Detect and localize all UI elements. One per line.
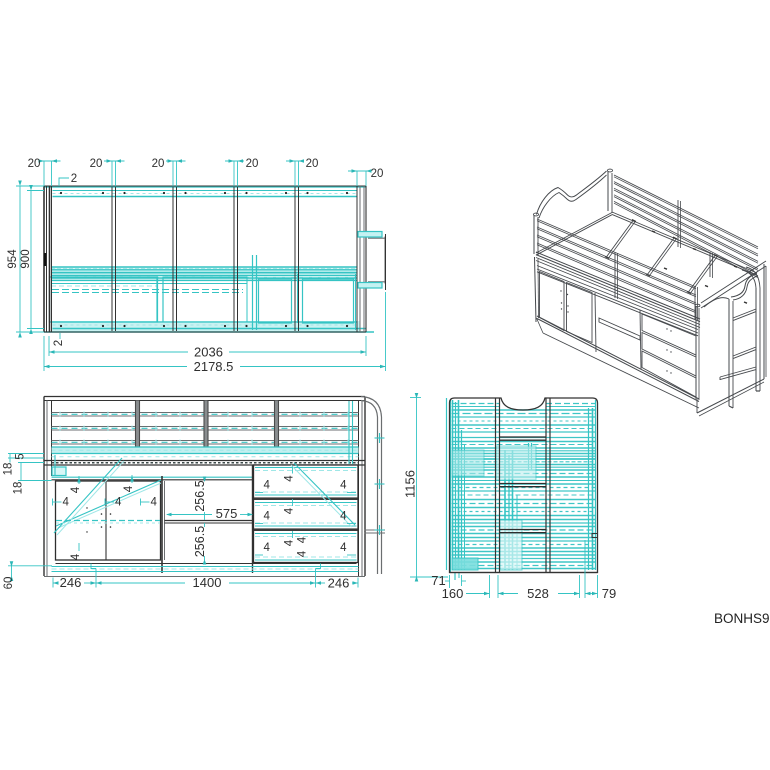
svg-text:20: 20: [371, 168, 384, 180]
svg-text:4: 4: [340, 511, 347, 523]
svg-text:900: 900: [20, 249, 32, 268]
svg-text:4: 4: [123, 485, 135, 492]
svg-text:20: 20: [246, 158, 259, 170]
svg-text:5: 5: [15, 453, 27, 459]
svg-text:BONHS95: BONHS95: [714, 611, 770, 626]
svg-text:4: 4: [70, 553, 82, 560]
svg-text:4: 4: [284, 507, 296, 514]
svg-text:20: 20: [152, 158, 165, 170]
svg-text:4: 4: [70, 486, 82, 493]
svg-text:4: 4: [115, 497, 122, 509]
svg-text:528: 528: [527, 586, 549, 601]
svg-text:954: 954: [7, 249, 19, 269]
svg-text:256.5: 256.5: [193, 480, 207, 511]
svg-text:2: 2: [71, 173, 77, 185]
svg-text:246: 246: [60, 575, 82, 590]
svg-text:2: 2: [53, 340, 65, 346]
svg-text:4: 4: [297, 550, 309, 557]
svg-text:4: 4: [297, 536, 309, 543]
svg-text:1400: 1400: [193, 575, 222, 590]
svg-text:4: 4: [340, 542, 347, 554]
svg-text:79: 79: [602, 586, 616, 601]
svg-text:4: 4: [340, 480, 347, 492]
svg-text:18: 18: [3, 463, 15, 476]
svg-text:20: 20: [28, 158, 41, 170]
svg-text:160: 160: [442, 586, 464, 601]
svg-text:256.5: 256.5: [193, 526, 207, 557]
svg-text:575: 575: [216, 506, 238, 521]
svg-text:18: 18: [13, 482, 25, 495]
svg-text:20: 20: [306, 158, 319, 170]
svg-text:4: 4: [264, 511, 271, 523]
svg-text:1156: 1156: [403, 470, 418, 498]
svg-text:4: 4: [284, 475, 296, 482]
svg-text:246: 246: [328, 576, 350, 591]
svg-text:4: 4: [284, 539, 296, 546]
svg-text:2178.5: 2178.5: [194, 359, 234, 374]
svg-text:2036: 2036: [194, 345, 223, 360]
svg-text:4: 4: [264, 480, 271, 492]
svg-text:60: 60: [3, 577, 15, 590]
svg-text:4: 4: [63, 497, 70, 509]
svg-text:4: 4: [151, 497, 158, 509]
svg-text:4: 4: [264, 542, 271, 554]
svg-text:20: 20: [90, 158, 103, 170]
